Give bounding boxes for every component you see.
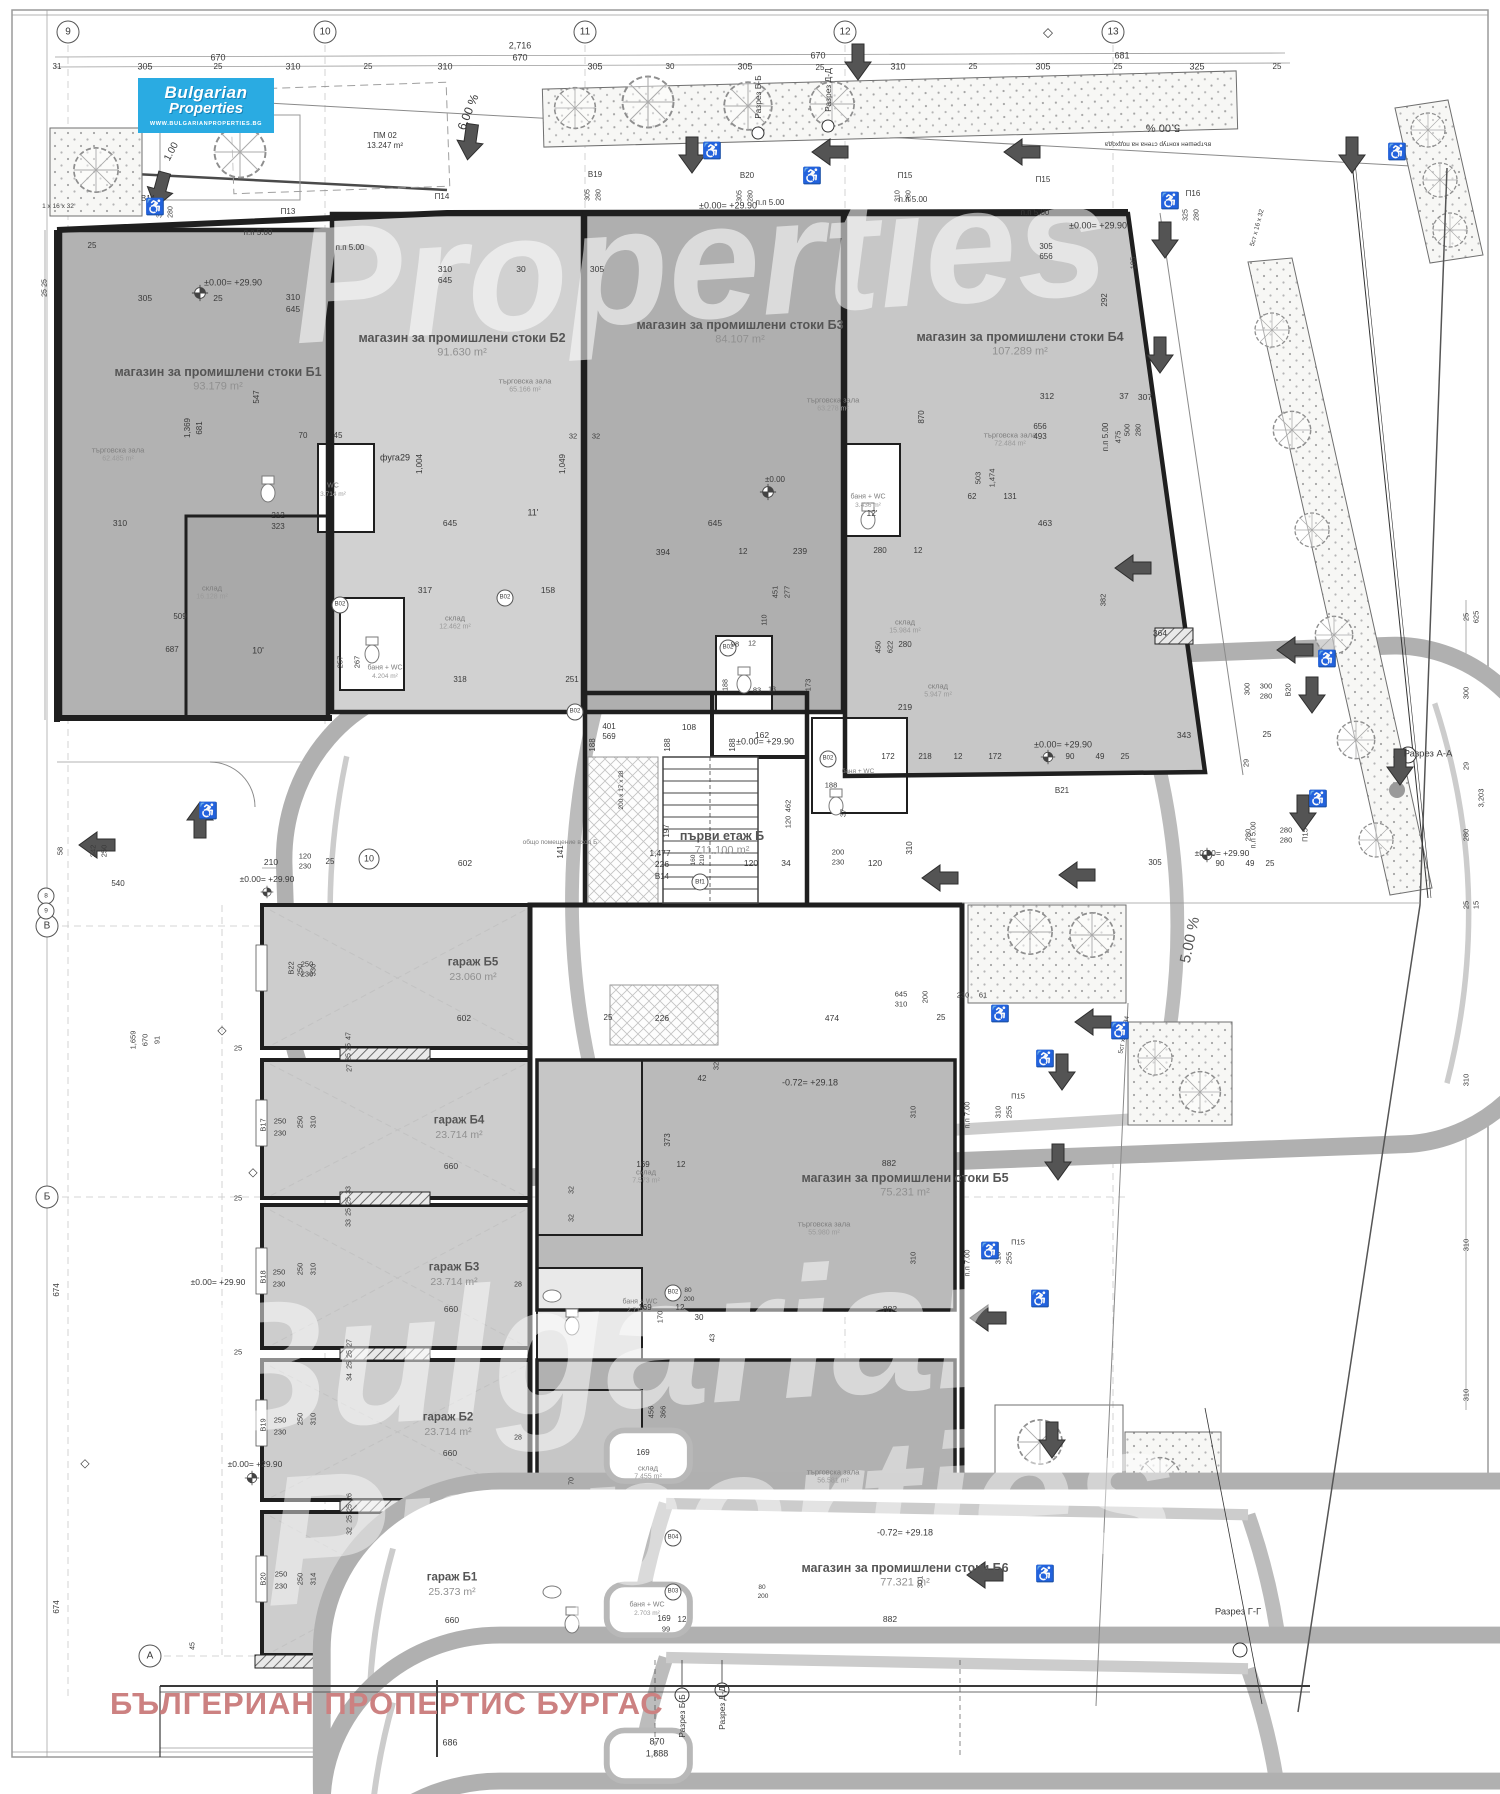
plan-label: п.п 5.00: [1021, 209, 1050, 217]
plan-label: 250: [100, 845, 108, 858]
plan-label: B17: [259, 1118, 267, 1131]
plan-label: 310: [1462, 1239, 1470, 1252]
plan-label: 686: [442, 1739, 457, 1748]
plan-label: 25: [347, 1350, 354, 1358]
plan-label: склад: [636, 1168, 656, 1176]
plan-label: 280: [596, 189, 603, 201]
room-area-b1: 93.179 m²: [193, 382, 243, 393]
floorplan-canvas: PropertiesBulgarianProperties 9101112131…: [0, 0, 1500, 1794]
plan-label: 62: [968, 493, 977, 501]
plan-label: 25: [1263, 731, 1272, 739]
plan-label: 681: [196, 421, 204, 434]
plan-label: ±0.00= +29.90: [1069, 222, 1127, 231]
section-label-gg: Разрез Г-Г: [1215, 1607, 1261, 1617]
plan-label: B21: [1055, 787, 1069, 795]
plan-label: баня + WC: [850, 494, 885, 501]
plan-label: 12': [866, 509, 877, 518]
plan-label: 70: [569, 1477, 576, 1485]
plan-label: 185: [1129, 257, 1137, 270]
plan-label: 12: [677, 1161, 686, 1169]
section-label-aa: Разрез А-А: [1404, 749, 1453, 759]
plan-label: търговска зала: [499, 377, 552, 385]
plan-label: склад: [202, 584, 222, 592]
plan-label: 197: [663, 824, 671, 837]
plan-label: баня + WC: [629, 1602, 664, 1609]
plan-label: 305: [138, 294, 152, 303]
plan-label: ±0.00= +29.90: [204, 279, 262, 288]
plan-label: 451: [771, 586, 779, 599]
plan-label: 325: [1183, 209, 1190, 221]
wheelchair-icon: ♿: [990, 1007, 1010, 1023]
plan-label: 310: [1462, 1074, 1470, 1087]
room-area-b3: 84.107 m²: [715, 335, 765, 346]
plan-label: 622: [886, 641, 894, 654]
plan-label: 25: [347, 1504, 354, 1512]
plan-label: 674: [53, 1283, 61, 1296]
plan-label: баня + WC: [842, 769, 875, 776]
plan-label: 312: [1040, 392, 1054, 401]
plan-label: 1,659: [129, 1031, 137, 1050]
plan-label: 493: [1033, 433, 1046, 441]
plan-label: 43: [708, 1334, 716, 1342]
plan-label: 250: [296, 1116, 304, 1129]
plan-label: 687: [165, 646, 178, 654]
plan-label: 90: [1216, 860, 1225, 868]
plan-label: 12: [676, 1304, 685, 1312]
plan-label: 280: [1260, 692, 1273, 700]
grid-bubble: B02: [665, 1285, 682, 1302]
plan-label: 456: [647, 1406, 655, 1419]
wheelchair-icon: ♿: [1035, 1567, 1055, 1583]
wheelchair-icon: ♿: [702, 144, 722, 160]
plan-label: 45: [190, 1642, 197, 1650]
plan-label: B19: [588, 171, 602, 179]
plan-label: 310: [1462, 1389, 1470, 1402]
plan-label: 12.462 m²: [439, 624, 471, 631]
plan-label: B20: [259, 1572, 267, 1585]
plan-label: 120: [299, 852, 312, 860]
plan-label: 172: [988, 753, 1001, 761]
plan-label: B14: [655, 873, 669, 881]
plan-label: 32: [569, 432, 577, 440]
plan-label: 602: [457, 1014, 471, 1023]
plan-label: фуга29: [380, 454, 410, 463]
grid-bubble: B03: [665, 1584, 682, 1601]
garage-area-b3: 23.714 m²: [430, 1277, 477, 1288]
plan-label: 670: [512, 54, 527, 63]
plan-label: 90: [1066, 753, 1075, 761]
plan-label: 42: [698, 1075, 707, 1083]
plan-label: 1,888: [646, 1750, 669, 1759]
plan-label: 230: [275, 1582, 288, 1590]
plan-label: 300: [1462, 687, 1470, 700]
plan-label: 70: [299, 432, 308, 440]
plan-label: 12: [914, 547, 923, 555]
plan-label: п.п 5.00: [756, 199, 785, 207]
plan-label: 670: [141, 1034, 149, 1047]
plan-label: търговска зала: [807, 396, 860, 404]
company-logo: Bulgarian Properties WWW.BULGARIANPROPER…: [138, 78, 274, 133]
plan-label: 56.581 m²: [817, 1478, 849, 1485]
plan-label: 169: [638, 1304, 651, 1312]
plan-label: 310: [909, 1106, 917, 1119]
plan-label: 49: [1246, 860, 1255, 868]
plan-label: 373: [664, 1133, 672, 1146]
plan-label: П15: [1011, 1092, 1025, 1100]
plan-label: 656: [1033, 423, 1046, 431]
plan-label: 158: [541, 586, 555, 595]
plan-label: П16: [1186, 190, 1201, 198]
plan-label: 32: [592, 432, 600, 440]
plan-label: търговска зала: [92, 446, 145, 454]
plan-label: ±0.00= +29.90: [191, 1278, 246, 1287]
plan-label: 645: [443, 519, 457, 528]
plan-label: 280: [1134, 424, 1142, 437]
plan-label: 2,716: [509, 42, 532, 51]
plan-label: 882: [882, 1159, 896, 1168]
plan-label: 170: [656, 1311, 664, 1324]
plan-label: склад: [638, 1464, 658, 1472]
plan-label: 120: [784, 816, 792, 829]
plan-label: 318: [453, 676, 466, 684]
room-title-b3: магазин за промишлени стоки Б3: [636, 319, 843, 332]
plan-label: 230: [273, 1280, 286, 1288]
plan-label: 30: [666, 63, 675, 71]
plan-label: 188: [589, 738, 597, 751]
plan-label: 462: [784, 800, 792, 813]
plan-label: -0.72= +29.18: [877, 1529, 933, 1538]
plan-label: 450: [874, 641, 882, 654]
plan-label: 7.455 m²: [634, 1474, 662, 1481]
plan-label: 239: [793, 547, 807, 556]
plan-label: търговска зала: [807, 1468, 860, 1476]
grid-bubble: 9: [38, 903, 55, 920]
wheelchair-icon: ♿: [1160, 194, 1180, 210]
plan-label: п.п 5.00: [336, 244, 365, 252]
plan-label: 366: [659, 1406, 667, 1419]
garage-area-b2: 23.714 m²: [424, 1427, 471, 1438]
plan-label: 625: [1472, 611, 1480, 624]
room-title-b2: магазин за промишлени стоки Б2: [358, 332, 565, 345]
plan-label: 670: [810, 52, 825, 61]
plan-label: 169: [657, 1615, 670, 1623]
plan-label: 660: [444, 1162, 458, 1171]
wheelchair-icon: ♿: [1110, 1024, 1130, 1040]
plan-label: 310: [438, 265, 452, 274]
plan-label: 25: [234, 1194, 242, 1202]
plan-label: 5ст x 16 x 32: [1250, 209, 1266, 247]
plan-label: 500: [1123, 424, 1131, 437]
plan-label: п.п 5.00: [244, 229, 273, 237]
plan-label: ПМ 02: [373, 132, 397, 140]
plan-label: 6.00 %: [455, 92, 480, 131]
plan-label: 25: [346, 1043, 353, 1051]
plan-label: -0.72= +29.18: [782, 1079, 838, 1088]
plan-label: 226: [655, 860, 669, 869]
plan-label: 172: [881, 753, 894, 761]
agency-footer-text: БЪЛГЕРИАН ПРОПЕРТИС БУРГАС: [110, 1686, 664, 1722]
plan-label: търговска зала: [798, 1220, 851, 1228]
plan-label: баня + WC: [367, 665, 402, 672]
plan-label: 12: [678, 1616, 687, 1624]
plan-label: 173: [804, 679, 812, 692]
plan-label: B18: [259, 1270, 267, 1283]
wheelchair-icon: ♿: [980, 1244, 1000, 1260]
plan-label: 1,474: [988, 469, 996, 488]
plan-label: 540: [111, 880, 124, 888]
plan-label: 25: [347, 1361, 354, 1369]
plan-label: 31: [53, 63, 62, 71]
plan-label: 300: [1243, 683, 1251, 696]
plan-label: 3.714 m²: [320, 492, 346, 499]
plan-label: WC: [327, 483, 339, 490]
plan-label: 280: [873, 547, 886, 555]
plan-label: 212: [271, 512, 284, 520]
plan-label: 219: [898, 703, 912, 712]
room-title-b5: магазин за промишлени стоки Б5: [801, 1172, 1008, 1185]
plan-label: 188: [664, 738, 672, 751]
plan-label: ±0.00= +29.90: [240, 875, 295, 884]
plan-label: 317: [418, 586, 432, 595]
room-title-b6: магазин за промишлени стоки Б6: [801, 1562, 1008, 1575]
plan-label: 394: [656, 548, 670, 557]
plan-label: 870: [649, 1738, 664, 1747]
plan-label: 62.485 m²: [102, 456, 134, 463]
plan-label: п.п 5.00: [1102, 423, 1110, 452]
plan-label: 25: [42, 289, 49, 297]
plan-label: 503: [974, 472, 982, 485]
plan-label: 280: [168, 206, 175, 218]
plan-label: 310: [309, 1116, 317, 1129]
plan-label: 99: [662, 1625, 670, 1633]
plan-label: 660: [444, 1305, 458, 1314]
plan-label: 1,049: [559, 454, 567, 474]
grid-bubble: B02: [497, 590, 514, 607]
plan-label: 305: [585, 189, 592, 201]
plan-label: 255: [1005, 1106, 1013, 1119]
plan-label: 120: [744, 859, 758, 868]
plan-label: 32: [712, 1062, 720, 1070]
plan-label: 29: [1462, 762, 1470, 770]
plan-label: 5.00 %: [1178, 916, 1202, 965]
plan-label: 250: [296, 1413, 304, 1426]
plan-label: 280: [1280, 836, 1293, 844]
plan-label: 310: [890, 63, 905, 72]
wheelchair-icon: ♿: [802, 169, 822, 185]
plan-label: 3,203: [1477, 789, 1485, 808]
plan-label: 280: [898, 641, 911, 649]
plan-label: 255: [1005, 1252, 1013, 1265]
plan-label: 250: [296, 964, 304, 977]
grid-bubble: 10: [314, 21, 337, 44]
plan-label: 12: [954, 753, 963, 761]
plan-label: 25: [213, 294, 222, 303]
plan-label: 10': [252, 647, 264, 656]
plan-label: Разрез Б-Б: [754, 75, 763, 118]
plan-label: 25: [346, 1208, 353, 1216]
plan-label: 11': [527, 509, 538, 518]
plan-label: 15: [1472, 901, 1480, 909]
plan-label: 250: [274, 1416, 287, 1424]
plan-label: 226: [655, 1014, 669, 1023]
plan-label: 25: [1273, 63, 1282, 71]
grid-bubble: B02: [567, 704, 584, 721]
plan-label: 25: [346, 1197, 353, 1205]
plan-label: 25: [937, 1014, 946, 1022]
plan-label: 210: [264, 858, 278, 867]
plan-label: 25: [1266, 860, 1275, 868]
plan-label: Разрез Д-Д: [824, 68, 833, 112]
plan-label: 310: [113, 519, 127, 528]
plan-label: 230: [832, 858, 845, 866]
plan-label: П14: [435, 193, 450, 201]
wheelchair-icon: ♿: [1308, 792, 1328, 808]
plan-label: 474: [825, 1014, 839, 1023]
plan-label: 277: [783, 586, 791, 599]
plan-label: 280: [1462, 829, 1470, 842]
diamond-marker: ◇: [80, 1457, 89, 1469]
plan-label: 267: [353, 656, 361, 669]
garage-area-b5: 23.060 m²: [449, 972, 496, 983]
plan-label: 25: [42, 279, 49, 287]
section-label-bb: Разрез Б-Б: [678, 1694, 687, 1737]
plan-label: 310: [895, 1000, 908, 1008]
plan-label: 160: [691, 855, 698, 866]
plan-label: 13.247 m²: [367, 142, 403, 150]
plan-label: 547: [253, 390, 261, 403]
plan-label: B19: [259, 1418, 267, 1431]
plan-label: П15: [1036, 176, 1051, 184]
plan-label: 26: [347, 1493, 354, 1501]
plan-label: 25: [347, 1515, 354, 1523]
plan-label: 364: [1153, 629, 1167, 638]
plan-label: търговска зала: [984, 431, 1037, 439]
plan-label: склад: [928, 682, 948, 690]
plan-label: 330: [309, 964, 317, 977]
plan-label: п.п 7.00: [963, 1102, 971, 1129]
wheelchair-icon: ♿: [1030, 1292, 1050, 1308]
room-area-b4: 107.289 m²: [992, 347, 1048, 358]
room-title-b1: магазин за промишлени стоки Б1: [114, 366, 321, 379]
plan-label: 12: [739, 548, 748, 556]
plan-label: 188: [825, 781, 838, 789]
plan-label: 37: [839, 809, 847, 817]
plan-label: 80: [758, 1585, 765, 1592]
plan-label: 401: [602, 723, 615, 731]
plan-label: 25: [1114, 63, 1123, 71]
room-area-b2: 91.630 m²: [437, 348, 487, 359]
plan-label: 305: [737, 63, 752, 72]
grid-bubble: Bf1: [692, 874, 709, 891]
plan-label: 307: [1138, 393, 1152, 402]
plan-label: 310: [309, 1263, 317, 1276]
plan-label: 660: [445, 1616, 459, 1625]
plan-label: 305: [590, 265, 604, 274]
plan-label: 250: [275, 1570, 288, 1578]
plan-label: 509: [173, 613, 186, 621]
floor-title: първи етаж Б: [680, 830, 764, 843]
plan-label: ±0.00= +29.90: [228, 1460, 283, 1469]
plan-label: 645: [286, 305, 300, 314]
wheelchair-icon: ♿: [198, 804, 218, 820]
plan-label: 257: [336, 656, 344, 669]
plan-label: 37: [1119, 392, 1128, 401]
plan-label: 230: [299, 862, 312, 870]
plan-label: 7.573 m²: [632, 1178, 660, 1185]
plan-label: 200: [832, 848, 845, 856]
garage-area-b4: 23.714 m²: [435, 1130, 482, 1141]
plan-label: п.п 7.00: [963, 1250, 971, 1277]
plan-label: 280: [1244, 829, 1252, 842]
plan-label: 645: [895, 990, 908, 998]
plan-label: 15.984 m²: [889, 628, 921, 635]
plan-label: 25: [88, 242, 97, 250]
plan-label: 25: [234, 1348, 242, 1356]
plan-label: 310: [909, 1252, 917, 1265]
plan-label: 110: [762, 614, 769, 625]
plan-label: 280: [1280, 826, 1293, 834]
plan-label: 49: [1096, 753, 1105, 761]
plan-label: 131: [1003, 493, 1016, 501]
plan-label: 310: [994, 1106, 1002, 1119]
plan-label: 61: [979, 991, 987, 999]
plan-label: 305: [1148, 859, 1161, 867]
plan-label: ±0.00= +29.90: [1034, 741, 1092, 750]
plan-label: 72.484 m²: [994, 441, 1026, 448]
plan-label: 1.00: [163, 141, 181, 163]
plan-label: ±0.00: [765, 476, 785, 484]
plan-label: 1,004: [416, 454, 424, 474]
grid-bubble: 9: [57, 21, 80, 44]
plan-label: 660: [443, 1449, 457, 1458]
plan-label: 33: [346, 1186, 353, 1194]
plan-label: склад: [895, 618, 915, 626]
plan-label: B20: [740, 172, 754, 180]
plan-label: 674: [53, 1600, 61, 1613]
plan-label: П15: [1011, 1238, 1025, 1246]
diamond-marker: ◇: [1043, 26, 1053, 39]
plan-label: 91: [153, 1036, 161, 1044]
grid-bubble: B02: [820, 751, 837, 768]
plan-label: 882: [883, 1615, 897, 1624]
plan-label: 5.947 m²: [924, 692, 952, 699]
room-area-b5: 75.231 m²: [880, 1188, 930, 1199]
plan-label: 310: [286, 293, 300, 302]
grid-bubble: 13: [1102, 21, 1125, 44]
plan-label: П15: [898, 172, 913, 180]
grid-bubble: 10: [359, 849, 380, 870]
garage-title-b5: гараж Б5: [448, 957, 499, 969]
plan-label: 25: [604, 1014, 613, 1022]
plan-label: 25: [364, 63, 373, 71]
plan-label: 45: [334, 432, 343, 440]
plan-label: B20: [1284, 683, 1292, 696]
plan-label: 200: [684, 1297, 695, 1304]
plan-label: 300: [1260, 682, 1273, 690]
plan-label: 301: [916, 1576, 924, 1589]
plan-label: 25: [346, 1053, 353, 1061]
plan-label: 343: [1177, 731, 1191, 740]
plan-label: 98: [731, 640, 739, 648]
garage-title-b2: гараж Б2: [423, 1412, 474, 1424]
plan-label: 1,369: [184, 418, 192, 438]
plan-label: 108: [682, 723, 696, 732]
plan-label: 250: [273, 1268, 286, 1276]
plan-label: 310: [309, 1413, 317, 1426]
plan-label: 230: [274, 1129, 287, 1137]
plan-label: 656: [1039, 253, 1052, 261]
plan-label: 230: [274, 1428, 287, 1436]
